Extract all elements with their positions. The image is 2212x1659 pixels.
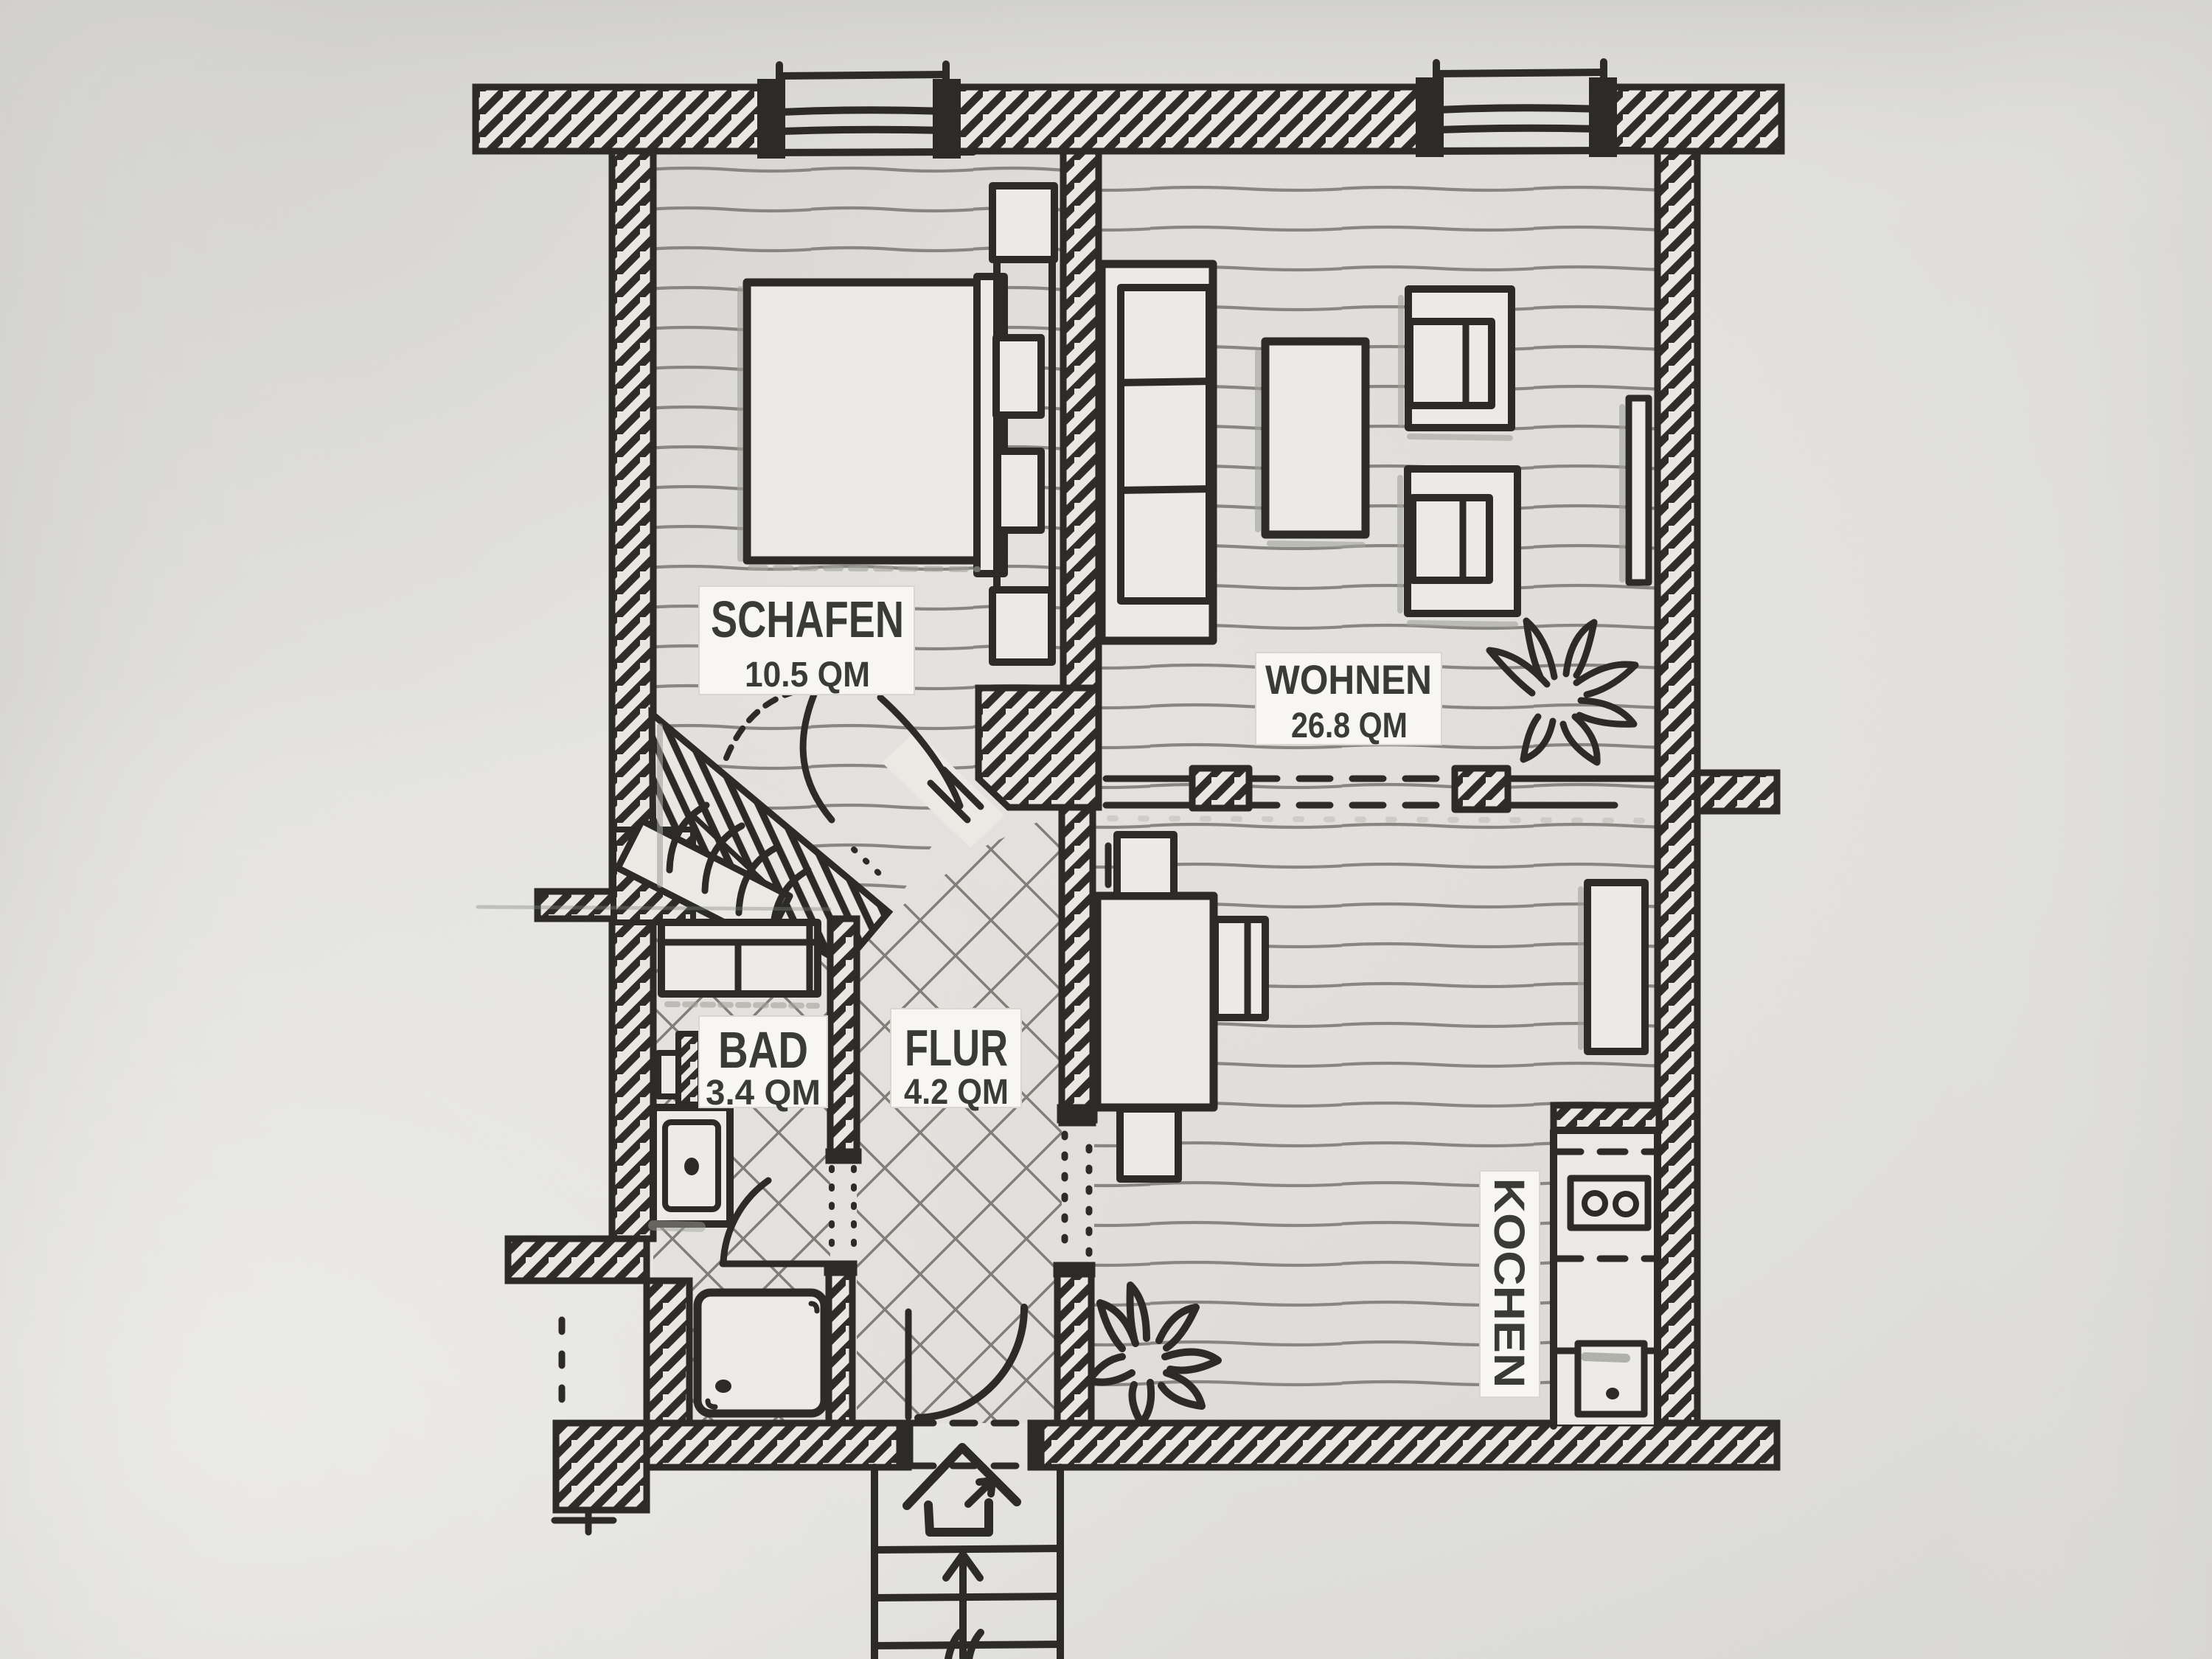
svg-text:FLUR: FLUR [905, 1019, 1008, 1077]
svg-text:4.2 QM: 4.2 QM [904, 1073, 1009, 1112]
svg-text:SCHAFEN: SCHAFEN [711, 591, 904, 648]
svg-text:BAD: BAD [718, 1021, 808, 1079]
svg-text:KOCHEN: KOCHEN [1485, 1178, 1533, 1388]
svg-text:WOHNEN: WOHNEN [1265, 656, 1432, 703]
svg-text:26.8 QM: 26.8 QM [1291, 706, 1408, 745]
svg-text:3.4 QM: 3.4 QM [706, 1074, 821, 1113]
svg-text:10.5 QM: 10.5 QM [745, 655, 870, 695]
